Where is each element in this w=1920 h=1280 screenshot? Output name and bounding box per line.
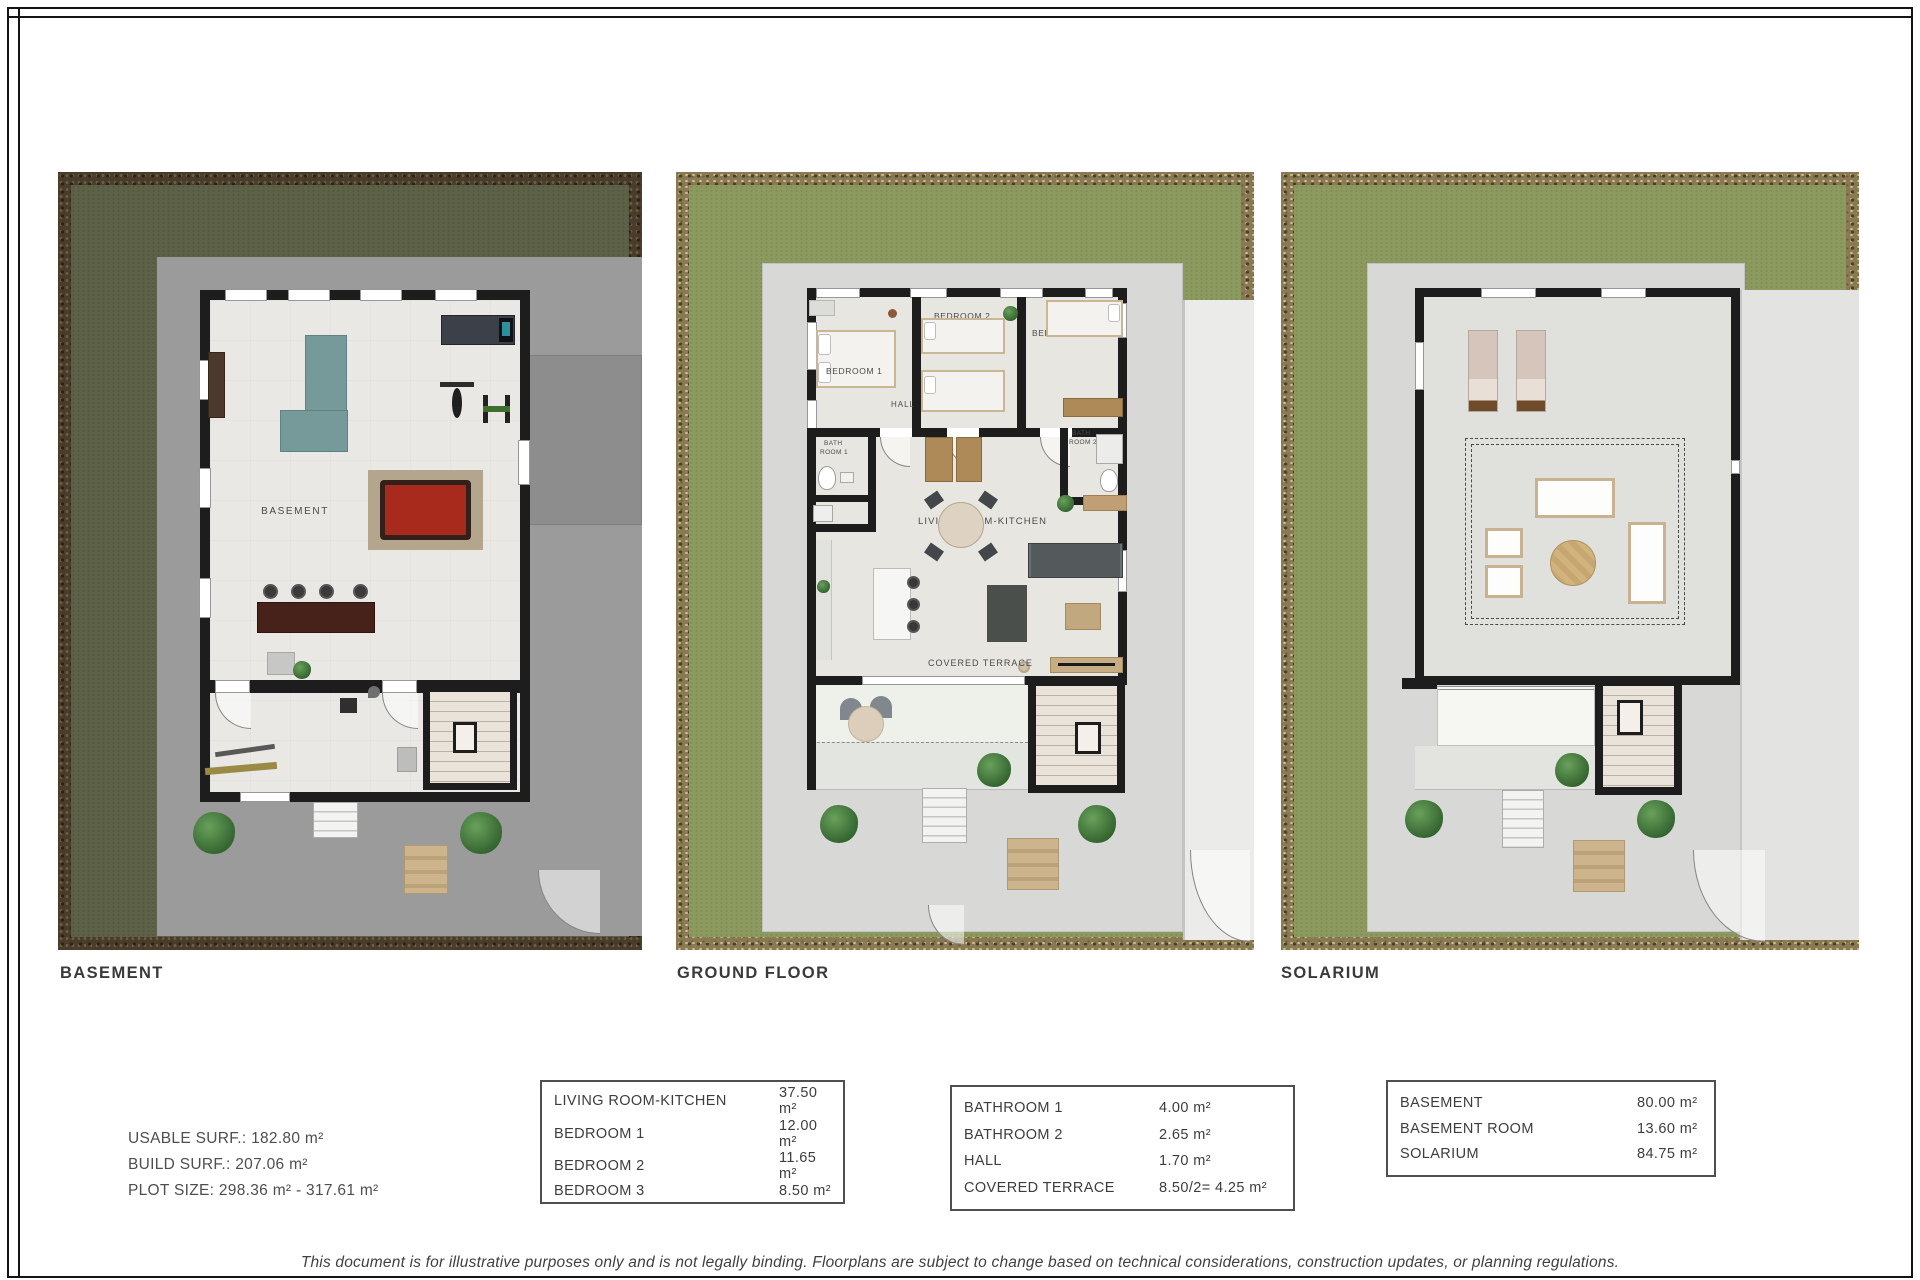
sun-lounger <box>1516 330 1546 412</box>
bush <box>1555 753 1589 787</box>
surface-summary: USABLE SURF.: 182.80 m² BUILD SURF.: 207… <box>128 1126 379 1204</box>
window <box>1601 288 1646 298</box>
outdoor-armchair <box>1485 565 1523 598</box>
room-label-bath1: BATH <box>824 440 842 447</box>
window <box>240 792 290 802</box>
shower <box>1096 434 1123 464</box>
door-opening <box>382 680 417 693</box>
kitchen-counter <box>816 540 832 660</box>
window <box>1481 288 1536 298</box>
room-label-bath2: ROOM 2 <box>1069 439 1097 446</box>
plant <box>1003 306 1018 321</box>
bar-counter <box>257 602 375 633</box>
bush <box>1637 800 1675 838</box>
hall-closet <box>925 437 953 482</box>
outdoor-sofa <box>1628 522 1666 604</box>
room-label-basement: BASEMENT <box>235 506 355 517</box>
row-label: LIVING ROOM-KITCHEN <box>554 1093 779 1109</box>
sofa <box>1028 543 1123 578</box>
disclaimer-text: This document is for illustrative purpos… <box>0 1254 1920 1272</box>
row-label: BASEMENT <box>1400 1095 1637 1111</box>
window <box>1415 342 1424 390</box>
table-row: BATHROOM 22.65 m² <box>952 1127 1293 1143</box>
area-table-rooms: LIVING ROOM-KITCHEN37.50 m² BEDROOM 112.… <box>540 1080 845 1204</box>
row-value: 11.65 m² <box>779 1150 831 1182</box>
treadmill-screen <box>502 322 510 336</box>
door-opening <box>880 428 912 437</box>
row-value: 13.60 m² <box>1637 1121 1697 1137</box>
window <box>1085 288 1113 298</box>
row-label: BEDROOM 1 <box>554 1126 779 1142</box>
stool <box>907 598 920 611</box>
row-value: 4.00 m² <box>1159 1100 1211 1116</box>
bush <box>820 805 858 843</box>
window <box>518 440 530 485</box>
area-table-basement-solarium: BASEMENT80.00 m² BASEMENT ROOM13.60 m² S… <box>1386 1080 1716 1177</box>
stair-landing <box>1075 722 1101 754</box>
row-label: BATHROOM 2 <box>964 1127 1159 1143</box>
table-row: LIVING ROOM-KITCHEN37.50 m² <box>542 1085 843 1117</box>
garden-table <box>1007 838 1059 890</box>
corner-sofa <box>280 410 348 452</box>
pool-table <box>380 480 471 540</box>
wardrobe <box>1063 398 1123 417</box>
tv <box>1058 663 1115 666</box>
plant <box>1057 495 1074 512</box>
door-opening <box>947 428 979 437</box>
pendant-lamp <box>368 686 380 698</box>
plant <box>817 580 830 593</box>
row-label: BEDROOM 3 <box>554 1183 779 1199</box>
coffee-table <box>1065 603 1101 630</box>
interior-wall <box>807 524 876 532</box>
bar-stool <box>291 584 306 599</box>
row-value: 1.70 m² <box>1159 1153 1211 1169</box>
pillow <box>924 376 936 394</box>
row-value: 37.50 m² <box>779 1085 831 1117</box>
row-value: 8.50 m² <box>779 1183 831 1199</box>
row-label: HALL <box>964 1153 1159 1169</box>
bush <box>977 753 1011 787</box>
plan-title-basement: BASEMENT <box>60 964 164 983</box>
garden-table <box>1573 840 1625 892</box>
window <box>816 288 860 298</box>
table-row: BEDROOM 112.00 m² <box>542 1118 843 1150</box>
floorplan-sheet: BASEMENT <box>0 0 1920 1280</box>
roof-edge-band <box>1437 686 1595 746</box>
wall-stub <box>1402 678 1437 689</box>
solarium-plan <box>1281 172 1859 950</box>
outdoor-armchair <box>1485 528 1523 558</box>
row-label: BEDROOM 2 <box>554 1158 779 1174</box>
stair-landing <box>1617 700 1643 735</box>
table-row: BEDROOM 38.50 m² <box>542 1183 843 1199</box>
pillow <box>1108 304 1120 322</box>
pillow <box>818 334 831 355</box>
storage-box <box>397 747 417 772</box>
build-surface: BUILD SURF.: 207.06 m² <box>128 1152 379 1178</box>
window <box>360 289 402 301</box>
outdoor-round-table <box>1550 540 1596 586</box>
table-row: HALL1.70 m² <box>952 1153 1293 1169</box>
kitchen-island <box>873 568 911 640</box>
plan-title-solarium: SOLARIUM <box>1281 964 1380 983</box>
interior-wall <box>868 437 876 524</box>
terrace-wall <box>807 685 816 790</box>
interior-wall <box>912 297 921 437</box>
stair-landing <box>453 722 477 753</box>
bar-stool <box>319 584 334 599</box>
area-table-baths-hall: BATHROOM 14.00 m² BATHROOM 22.65 m² HALL… <box>950 1085 1295 1211</box>
washing-machine <box>813 505 833 522</box>
side-plot <box>1740 290 1859 940</box>
bush <box>193 812 235 854</box>
stool <box>907 620 920 633</box>
interior-wall <box>807 495 876 502</box>
usable-surface: USABLE SURF.: 182.80 m² <box>128 1126 379 1152</box>
stool <box>907 576 920 589</box>
exercise-bike <box>440 382 474 387</box>
room-label-bath2: BATH <box>1072 430 1090 437</box>
table-row: SOLARIUM84.75 m² <box>1388 1146 1714 1162</box>
chair <box>340 698 357 713</box>
page-border-inner-top <box>7 16 1913 18</box>
bush <box>1078 805 1116 843</box>
interior-wall <box>1060 428 1068 505</box>
row-label: SOLARIUM <box>1400 1146 1637 1162</box>
table-row: BASEMENT ROOM13.60 m² <box>1388 1121 1714 1137</box>
room-label-bath1: ROOM 1 <box>820 449 848 456</box>
row-value: 2.65 m² <box>1159 1127 1211 1143</box>
entry-steps <box>1502 790 1544 848</box>
row-label: BATHROOM 1 <box>964 1100 1159 1116</box>
pillow <box>924 322 936 340</box>
table-row: BATHROOM 14.00 m² <box>952 1100 1293 1116</box>
door-opening <box>215 680 250 693</box>
plant <box>293 661 311 679</box>
window <box>435 289 477 301</box>
ground-floor-plan: BEDROOM 1 BEDROOM 2 BEDROOM 3 HALL BATH … <box>676 172 1254 950</box>
window <box>199 578 211 618</box>
row-label: BASEMENT ROOM <box>1400 1121 1637 1137</box>
garden-table <box>404 845 448 894</box>
shelf <box>809 300 835 316</box>
bistro-table <box>848 706 884 742</box>
room-label-terrace: COVERED TERRACE <box>928 658 1033 668</box>
window <box>199 468 211 508</box>
window <box>225 289 267 301</box>
window <box>1731 460 1740 474</box>
window <box>288 289 330 301</box>
entry-steps <box>922 788 967 843</box>
decor-dot <box>888 309 897 318</box>
bush <box>460 812 502 854</box>
sink <box>840 472 854 483</box>
page-border-inner-left <box>18 7 20 1278</box>
row-value: 8.50/2= 4.25 m² <box>1159 1180 1267 1196</box>
table-row: BEDROOM 211.65 m² <box>542 1150 843 1182</box>
table-row: COVERED TERRACE8.50/2= 4.25 m² <box>952 1180 1293 1196</box>
interior-wall <box>1017 297 1026 437</box>
room-label-bedroom1: BEDROOM 1 <box>826 366 882 376</box>
exercise-bike-seat <box>452 388 462 418</box>
dining-table <box>938 502 984 548</box>
sliding-window <box>862 676 1025 685</box>
armchair <box>987 585 1027 642</box>
row-value: 12.00 m² <box>779 1118 831 1150</box>
plan-title-ground-floor: GROUND FLOOR <box>677 964 829 983</box>
toilet <box>818 466 836 490</box>
toilet <box>1100 469 1118 492</box>
outdoor-sofa <box>1535 478 1615 518</box>
bar-stool <box>263 584 278 599</box>
row-label: COVERED TERRACE <box>964 1180 1159 1196</box>
plot-size: PLOT SIZE: 298.36 m² - 317.61 m² <box>128 1178 379 1204</box>
side-table <box>267 652 295 675</box>
sun-lounger <box>1468 330 1498 412</box>
basement-plan: BASEMENT <box>58 172 642 950</box>
media-console <box>208 352 225 418</box>
bush <box>1405 800 1443 838</box>
row-value: 84.75 m² <box>1637 1146 1697 1162</box>
entry-steps <box>313 802 358 838</box>
hall-closet <box>956 437 982 482</box>
sideboard <box>1083 495 1127 511</box>
table-row: BASEMENT80.00 m² <box>1388 1095 1714 1111</box>
row-value: 80.00 m² <box>1637 1095 1697 1111</box>
room-label-hall: HALL <box>891 400 915 409</box>
bar-stool <box>353 584 368 599</box>
weight-bar <box>483 406 510 412</box>
side-plot <box>1183 300 1254 940</box>
